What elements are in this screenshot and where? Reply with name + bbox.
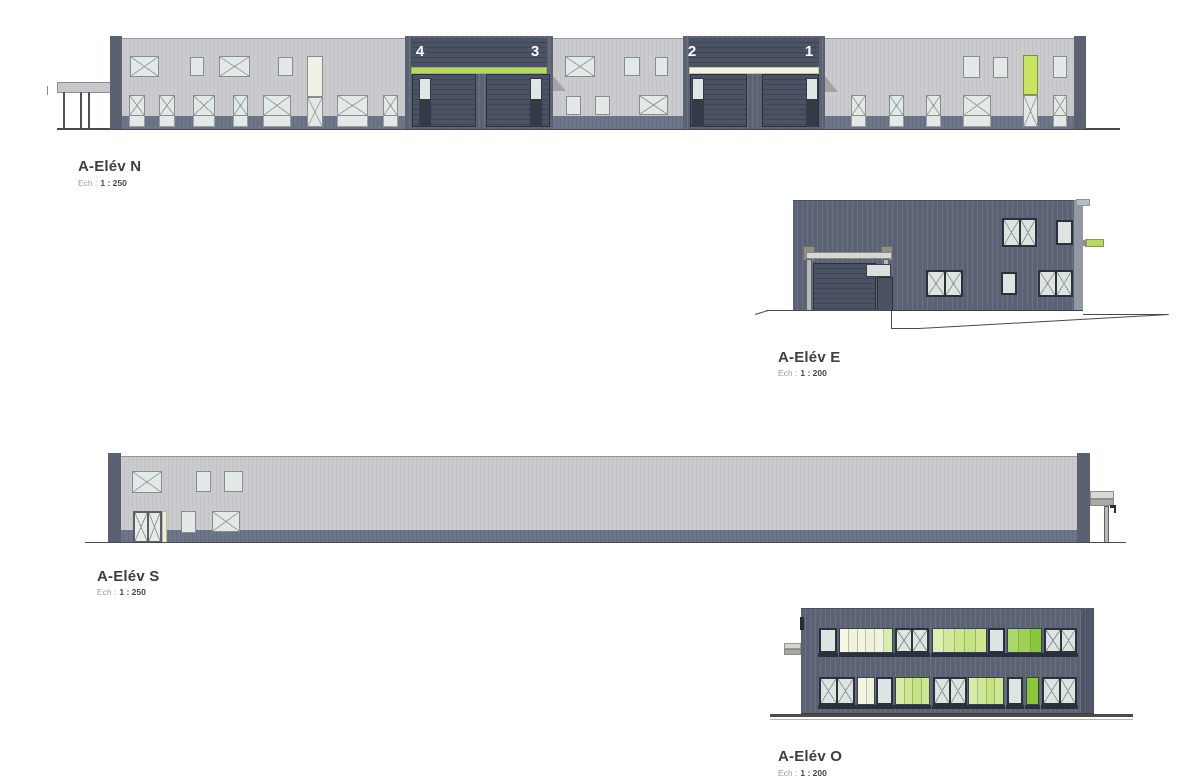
ground-line-thin [770,719,1133,720]
window [1007,677,1023,705]
window-double-crossed [819,677,855,705]
window-sill [1006,653,1043,657]
window-sill [818,653,838,657]
window-sill [856,705,876,709]
wall-stub-shadow [784,649,801,655]
window-sill [1025,705,1040,709]
window-double-crossed [895,628,929,653]
window [988,628,1005,653]
window-sill [967,705,1005,709]
scale-label-west: Ech :1 : 200 [778,768,827,778]
glazing-band-light-green [932,628,987,653]
corner-trim [1081,608,1094,713]
window-sill [875,705,894,709]
window-double-crossed [1044,628,1077,653]
window-sill [894,653,930,657]
glazing-band-light-green [895,677,930,705]
window-sill [894,705,931,709]
window-sill [839,653,894,657]
drawing-sheet: 4 3 2 1 [0,0,1200,782]
scale-prefix: Ech : [778,768,797,778]
glazing-band-green [1007,628,1042,653]
window-sill [1041,705,1078,709]
elevation-label-west: A-Elév O [778,748,842,765]
window-sill [931,653,988,657]
glazing-band-cream [839,628,893,653]
glazing-band-light-green [968,677,1004,705]
window-double-crossed [933,677,967,705]
window [876,677,893,705]
window [819,628,837,653]
window-sill [988,653,1006,657]
elevation-west: A-Elév O Ech :1 : 200 [0,0,1200,782]
glazing-band-cream [857,677,875,705]
window-sill [1043,653,1078,657]
glazing-panel-bright-green [1026,677,1039,705]
window-sill [818,705,856,709]
window-sill [932,705,968,709]
edge-notch [800,617,804,630]
scale-value: 1 : 200 [800,768,826,778]
ground-line-thick [770,714,1133,717]
window-sill [1006,705,1024,709]
window-double-crossed [1042,677,1077,705]
